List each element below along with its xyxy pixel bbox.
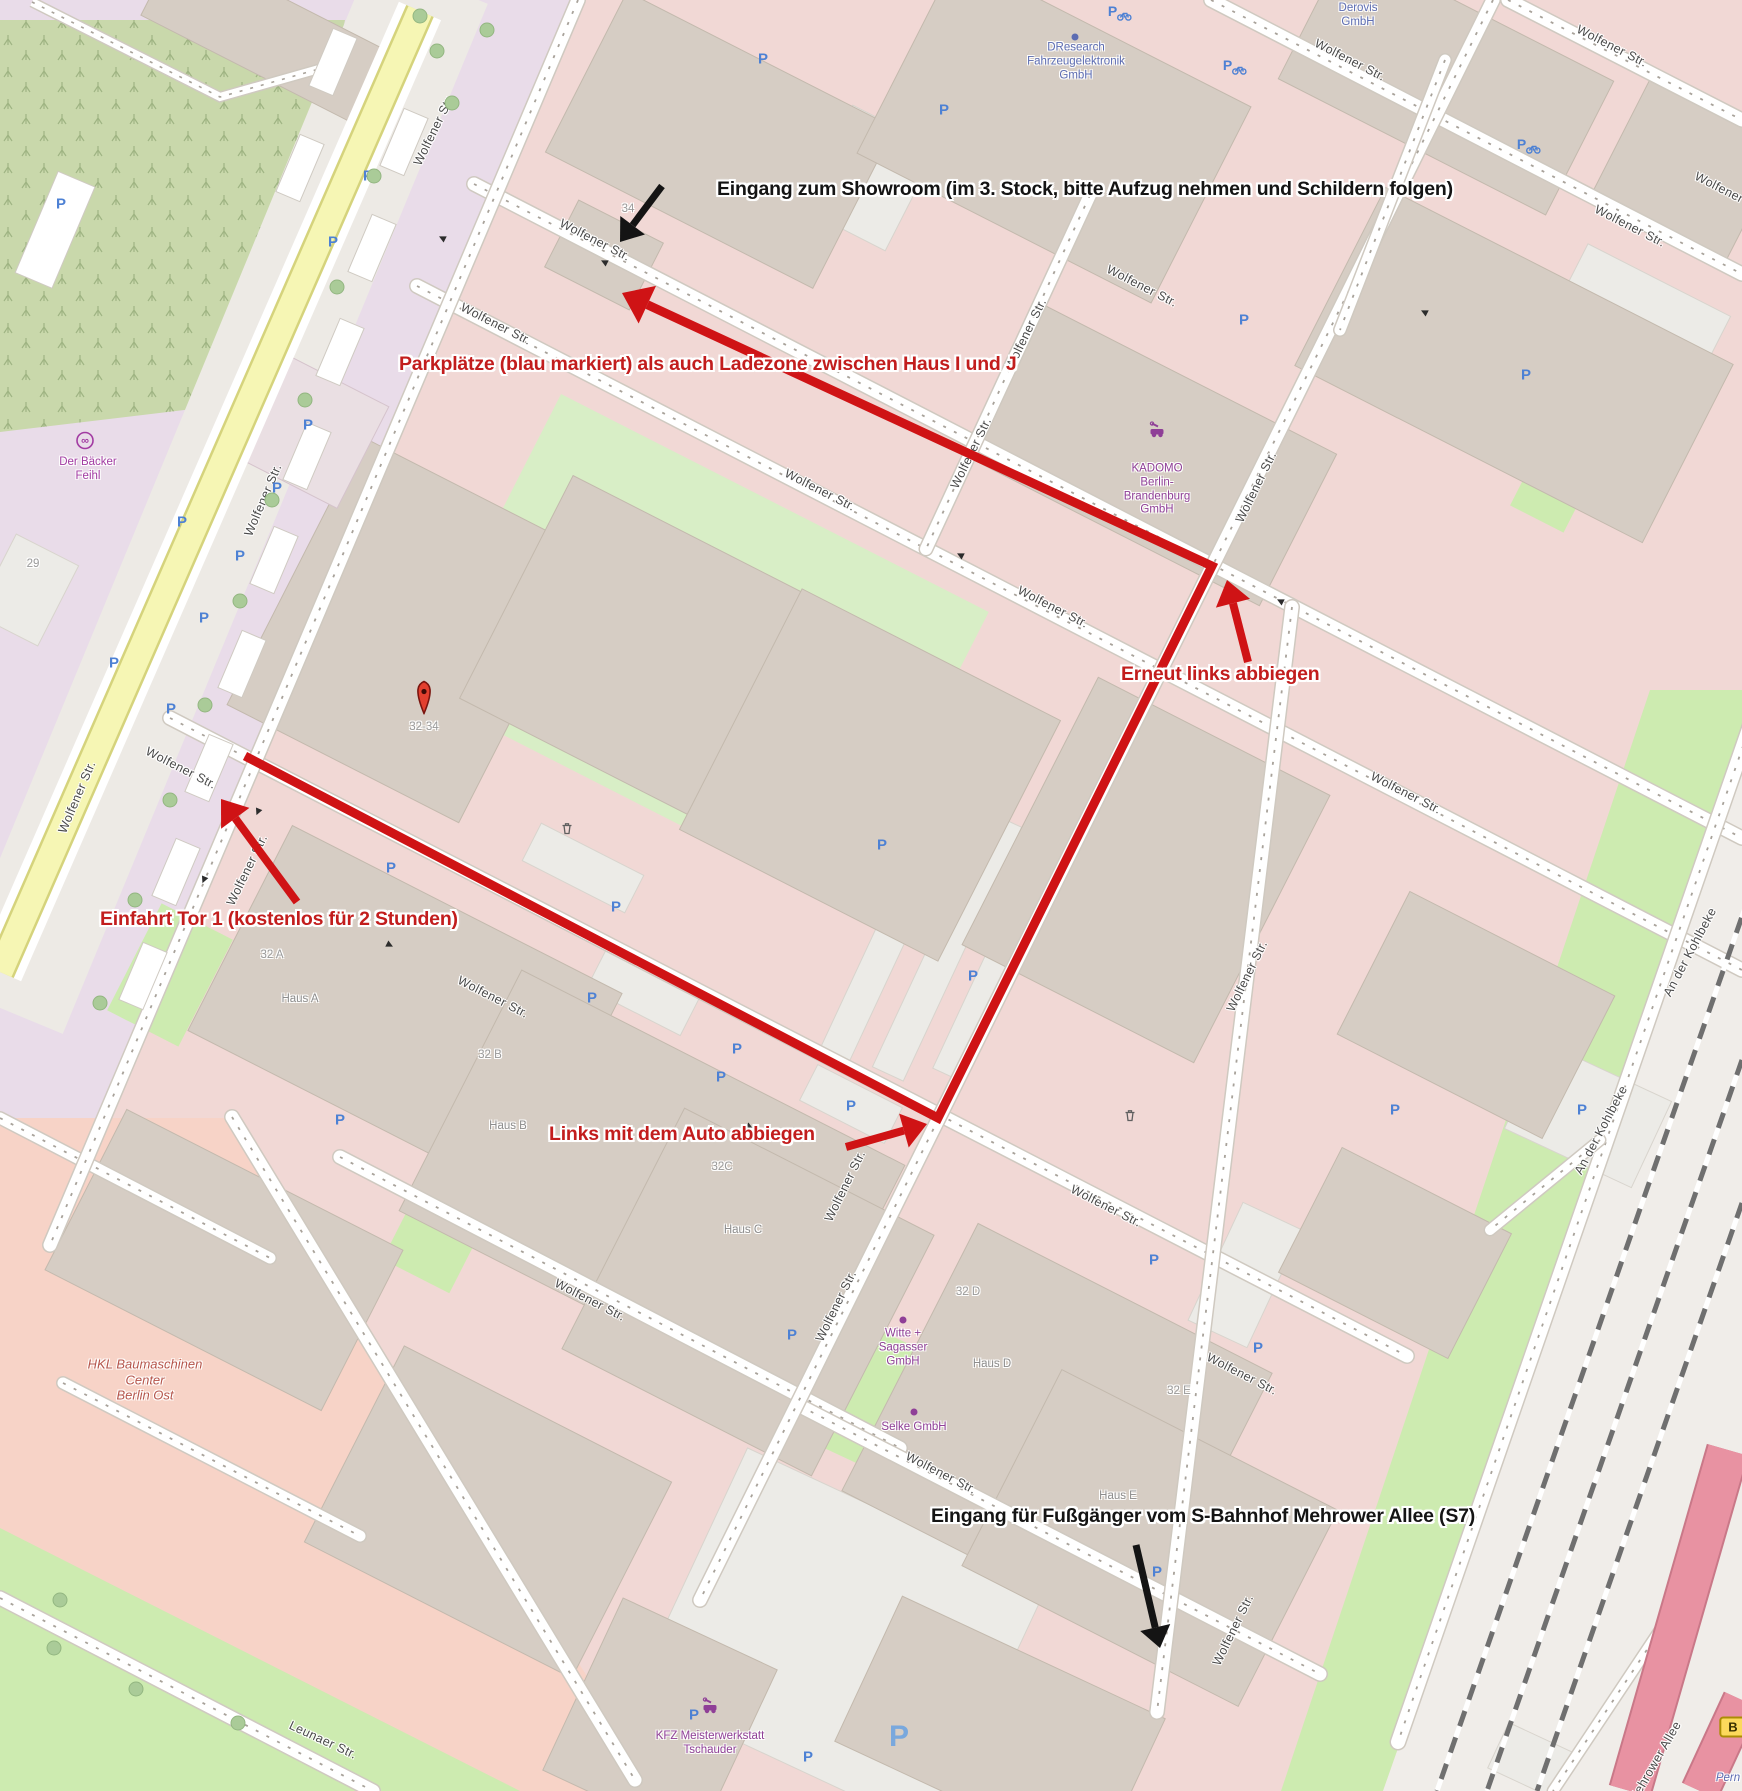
annotations-layer: Eingang zum Showroom (im 3. Stock, bitte… [0, 0, 1742, 1791]
annot-gate1-entry: Einfahrt Tor 1 (kostenlos für 2 Stunden) [100, 908, 458, 931]
annot-parking-loading-zone: Parkplätze (blau markiert) als auch Lade… [399, 353, 1016, 376]
annot-showroom-entrance: Eingang zum Showroom (im 3. Stock, bitte… [717, 178, 1453, 201]
map-canvas[interactable]: Wolfener Str.Wolfener Str.Wolfener Str.W… [0, 0, 1742, 1791]
annot-turn-left-again: Erneut links abbiegen [1121, 663, 1319, 686]
annot-pedestrian-entrance: Eingang für Fußgänger vom S-Bahnhof Mehr… [931, 1505, 1475, 1528]
annot-turn-left-car: Links mit dem Auto abbiegen [549, 1123, 815, 1146]
